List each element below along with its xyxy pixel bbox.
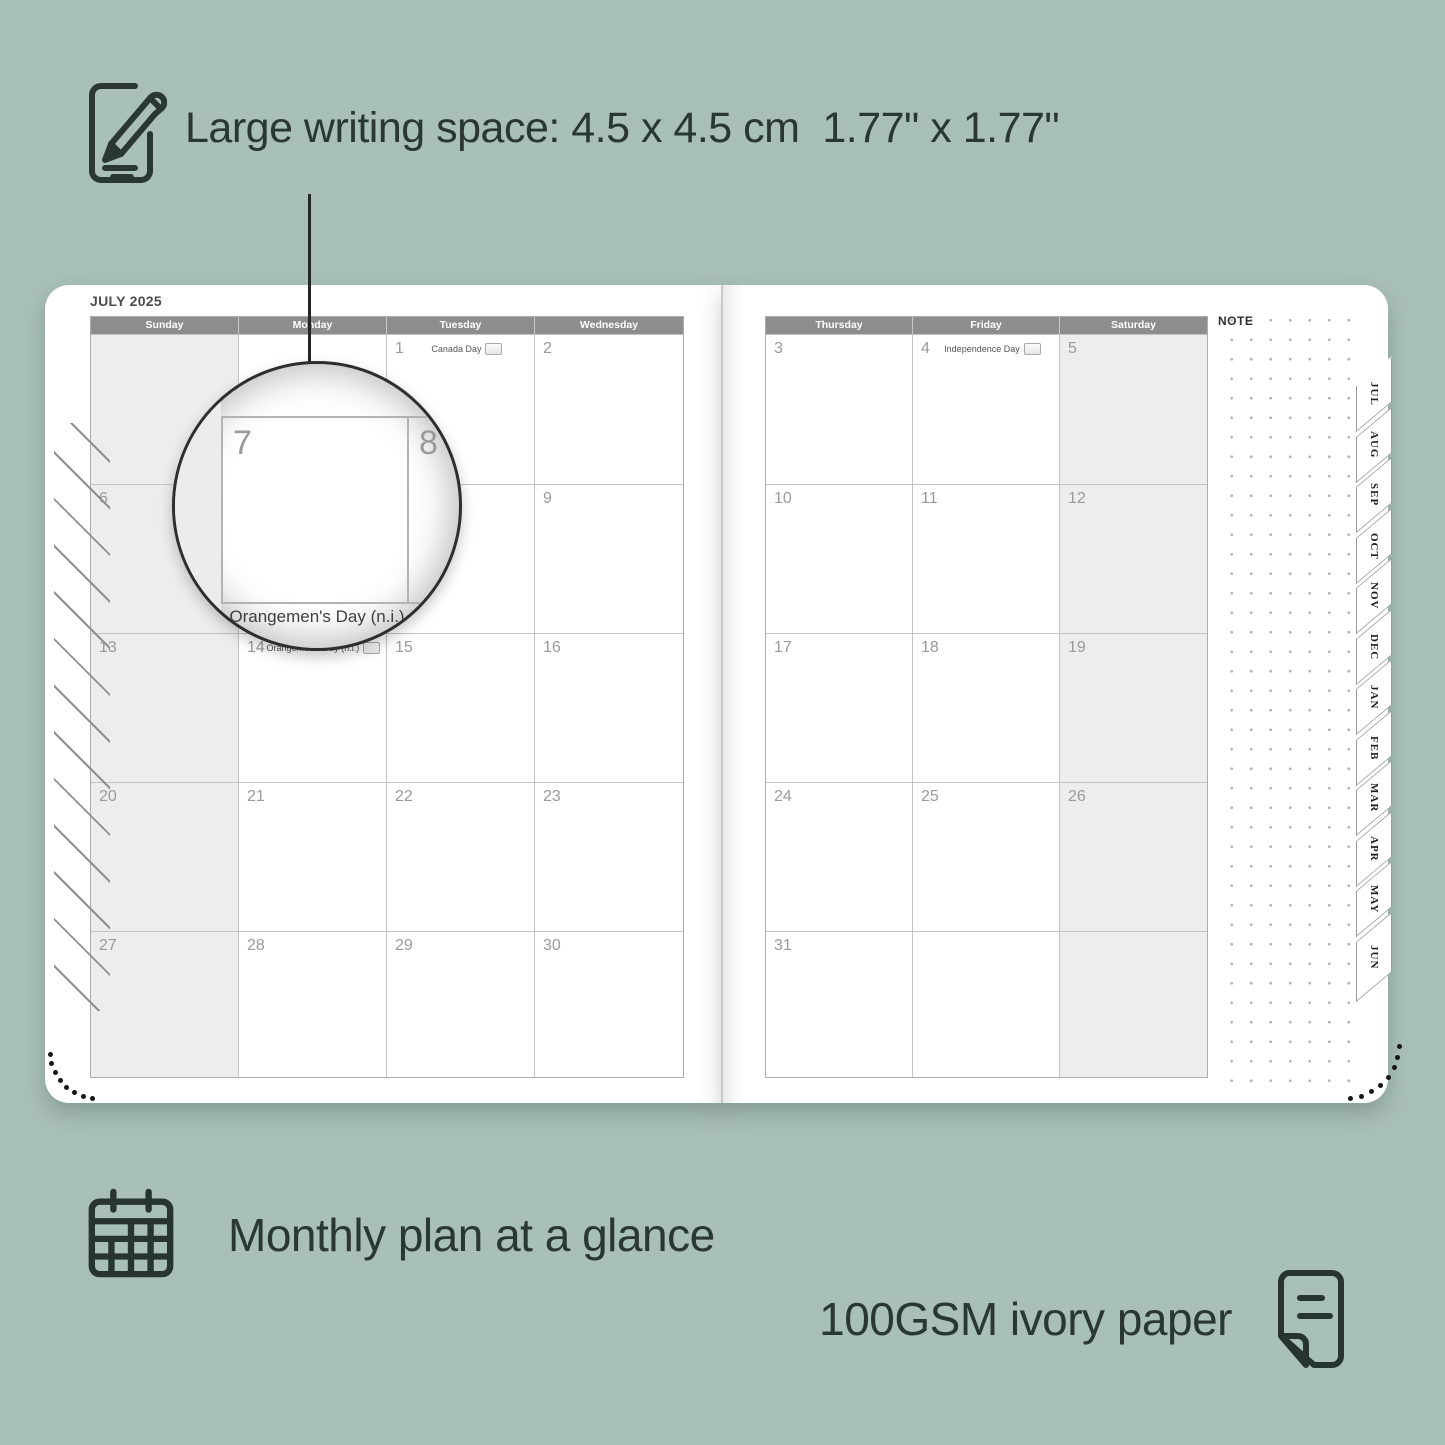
pencil-note-icon bbox=[83, 78, 167, 189]
calendar-cell: 5 bbox=[1060, 334, 1207, 484]
stitch-dot bbox=[1369, 1089, 1374, 1094]
day-number: 19 bbox=[1068, 639, 1086, 657]
magnifier-circle: 7 8 Orangemen's Day (n.i.) bbox=[172, 361, 462, 651]
day-number: 28 bbox=[247, 937, 265, 955]
calendar-cell: 15 bbox=[387, 633, 535, 782]
flag-icon bbox=[485, 343, 502, 355]
day-number: 14 bbox=[247, 639, 265, 657]
stitch-dot bbox=[72, 1090, 77, 1095]
flag-icon bbox=[363, 642, 380, 654]
weekday-header: Sunday bbox=[91, 317, 239, 334]
calendar-cell bbox=[1060, 931, 1207, 1077]
month-title: JULY 2025 bbox=[90, 293, 162, 309]
day-number: 30 bbox=[543, 937, 561, 955]
day-number: 26 bbox=[1068, 788, 1086, 806]
magnified-grid-line bbox=[407, 416, 409, 602]
day-number: 9 bbox=[543, 490, 552, 508]
day-number: 12 bbox=[1068, 490, 1086, 508]
stitch-dot bbox=[81, 1094, 86, 1099]
headline-text: Large writing space: 4.5 x 4.5 cm 1.77" … bbox=[185, 104, 1059, 153]
magnified-weekend-column bbox=[175, 364, 221, 648]
magnified-grid-line bbox=[221, 602, 459, 604]
day-number: 18 bbox=[921, 639, 939, 657]
calendar-cell: 18 bbox=[913, 633, 1060, 782]
stitch-dot bbox=[1397, 1044, 1402, 1049]
calendar-cell: 17 bbox=[766, 633, 913, 782]
calendar-cell: 4Independence Day bbox=[913, 334, 1060, 484]
day-number: 2 bbox=[543, 340, 552, 358]
calendar-cell: 28 bbox=[239, 931, 387, 1077]
calendar-cell: 19 bbox=[1060, 633, 1207, 782]
calendar-cell: 29 bbox=[387, 931, 535, 1077]
weekday-header: Wednesday bbox=[535, 317, 683, 334]
note-dot-grid bbox=[1216, 318, 1366, 1082]
calendar-cell: 20 bbox=[91, 782, 239, 931]
magnifier-holiday-label: Orangemen's Day (n.i.) bbox=[175, 607, 459, 627]
weekday-header: Tuesday bbox=[387, 317, 535, 334]
stitch-dot bbox=[64, 1085, 69, 1090]
calendar-cell: 26 bbox=[1060, 782, 1207, 931]
calendar-cell: 25 bbox=[913, 782, 1060, 931]
weekday-header: Friday bbox=[913, 317, 1060, 334]
calendar-cell: 13 bbox=[91, 633, 239, 782]
calendar-cell: 3 bbox=[766, 334, 913, 484]
calendar-cell: 24 bbox=[766, 782, 913, 931]
stitch-dot bbox=[1395, 1055, 1400, 1060]
flag-icon bbox=[1024, 343, 1041, 355]
stitch-dot bbox=[58, 1078, 63, 1083]
callout-connector-line bbox=[308, 194, 311, 364]
day-number: 29 bbox=[395, 937, 413, 955]
calendar-cell: 21 bbox=[239, 782, 387, 931]
stitch-dot bbox=[1348, 1096, 1353, 1101]
day-number: 10 bbox=[774, 490, 792, 508]
day-number: 31 bbox=[774, 937, 792, 955]
magnified-grid-line bbox=[221, 416, 459, 418]
paper-sheet-icon bbox=[1272, 1268, 1350, 1375]
calendar-cell: 30 bbox=[535, 931, 683, 1077]
calendar-cell: 9 bbox=[535, 484, 683, 633]
calendar-grid-right: ThursdayFridaySaturday34Independence Day… bbox=[765, 316, 1208, 1078]
day-number: 4 bbox=[921, 340, 930, 358]
calendar-cell: 10 bbox=[766, 484, 913, 633]
product-infographic: Large writing space: 4.5 x 4.5 cm 1.77" … bbox=[0, 0, 1445, 1445]
weekday-header: Thursday bbox=[766, 317, 913, 334]
stitch-dot bbox=[48, 1052, 53, 1057]
calendar-cell: 2 bbox=[535, 334, 683, 484]
calendar-cell: 23 bbox=[535, 782, 683, 931]
day-number: 23 bbox=[543, 788, 561, 806]
hatch-decoration bbox=[54, 423, 110, 1011]
calendar-cell: 12 bbox=[1060, 484, 1207, 633]
stitch-dot bbox=[90, 1096, 95, 1101]
day-number: 5 bbox=[1068, 340, 1077, 358]
day-number: 21 bbox=[247, 788, 265, 806]
stitch-dot bbox=[1359, 1094, 1364, 1099]
magnified-grid-line bbox=[221, 416, 223, 602]
stitch-dot bbox=[1392, 1065, 1397, 1070]
feature-monthly-text: Monthly plan at a glance bbox=[228, 1208, 715, 1262]
stitch-dot bbox=[1386, 1075, 1391, 1080]
day-number: 15 bbox=[395, 639, 413, 657]
day-number: 22 bbox=[395, 788, 413, 806]
calendar-cell bbox=[913, 931, 1060, 1077]
day-number: 1 bbox=[395, 340, 404, 358]
stitch-dot bbox=[1378, 1083, 1383, 1088]
stitch-dot bbox=[53, 1070, 58, 1075]
calendar-cell: 11 bbox=[913, 484, 1060, 633]
stitch-dot bbox=[49, 1061, 54, 1066]
note-label: NOTE bbox=[1218, 314, 1253, 328]
calendar-cell: 31 bbox=[766, 931, 913, 1077]
calendar-cell: 14Orangemen's Day (n.i.) bbox=[239, 633, 387, 782]
holiday-label: Independence Day bbox=[944, 343, 1041, 355]
day-number: 25 bbox=[921, 788, 939, 806]
page-fold-line bbox=[721, 285, 723, 1103]
calendar-cell: 16 bbox=[535, 633, 683, 782]
magnifier-day-8: 8 bbox=[419, 424, 438, 463]
calendar-grid-icon bbox=[84, 1186, 178, 1285]
weekday-header: Saturday bbox=[1060, 317, 1207, 334]
weekday-header: Monday bbox=[239, 317, 387, 334]
day-number: 3 bbox=[774, 340, 783, 358]
day-number: 16 bbox=[543, 639, 561, 657]
holiday-label: Canada Day bbox=[431, 343, 502, 355]
magnifier-day-7: 7 bbox=[233, 424, 252, 463]
day-number: 11 bbox=[921, 490, 938, 508]
calendar-cell: 27 bbox=[91, 931, 239, 1077]
feature-paper-text: 100GSM ivory paper bbox=[819, 1292, 1232, 1346]
day-number: 17 bbox=[774, 639, 792, 657]
day-number: 24 bbox=[774, 788, 792, 806]
calendar-cell: 22 bbox=[387, 782, 535, 931]
